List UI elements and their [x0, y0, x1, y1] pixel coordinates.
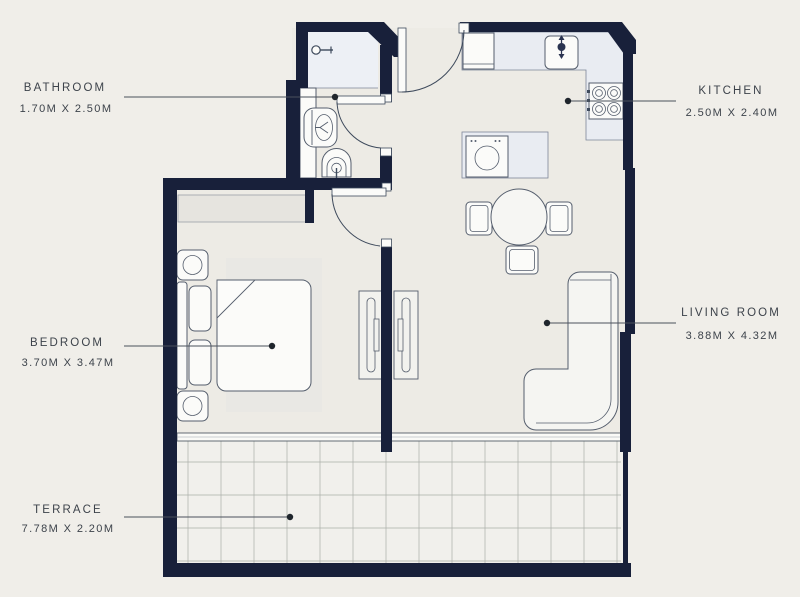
washbasin-icon	[322, 149, 351, 180]
wardrobe-icon	[394, 291, 418, 379]
terrace-label: TERRACE	[33, 504, 103, 516]
floor-plan: BATHROOM 1.70M X 2.50M KITCHEN 2.50M X 2…	[0, 0, 800, 597]
dining-table-icon	[491, 189, 547, 245]
kitchen-sink-icon	[545, 35, 578, 69]
toilet-icon	[304, 108, 337, 147]
bathroom-label: BATHROOM	[24, 82, 106, 94]
living-room-label: LIVING ROOM	[681, 307, 781, 319]
floor-plan-canvas: BATHROOM 1.70M X 2.50M KITCHEN 2.50M X 2…	[0, 0, 800, 597]
chair-icon	[546, 202, 572, 235]
nightstand-icon	[177, 250, 208, 280]
shower-floor	[308, 32, 378, 88]
terrace-dimensions: 7.78M X 2.20M	[22, 523, 115, 535]
pillow-icon	[189, 286, 211, 331]
chair-icon	[466, 202, 492, 235]
washing-machine-icon	[466, 136, 508, 177]
kitchen-label: KITCHEN	[698, 85, 763, 97]
pillow-icon	[189, 340, 211, 385]
living-room-dimensions: 3.88M X 4.32M	[686, 330, 779, 342]
chair-icon	[506, 246, 538, 274]
terrace-floor	[170, 433, 628, 566]
bathroom-dimensions: 1.70M X 2.50M	[20, 103, 113, 115]
nightstand-icon	[177, 391, 208, 421]
fridge-icon	[463, 33, 494, 69]
terrace-area	[170, 433, 628, 566]
bedroom-dimensions: 3.70M X 3.47M	[22, 357, 115, 369]
terrace-railing	[623, 450, 628, 568]
headboard	[177, 282, 187, 389]
wardrobe-icon	[359, 291, 383, 379]
window-icon	[177, 433, 621, 441]
closet-strip	[178, 195, 306, 222]
bedroom-label: BEDROOM	[30, 337, 104, 349]
kitchen-dimensions: 2.50M X 2.40M	[686, 107, 779, 119]
